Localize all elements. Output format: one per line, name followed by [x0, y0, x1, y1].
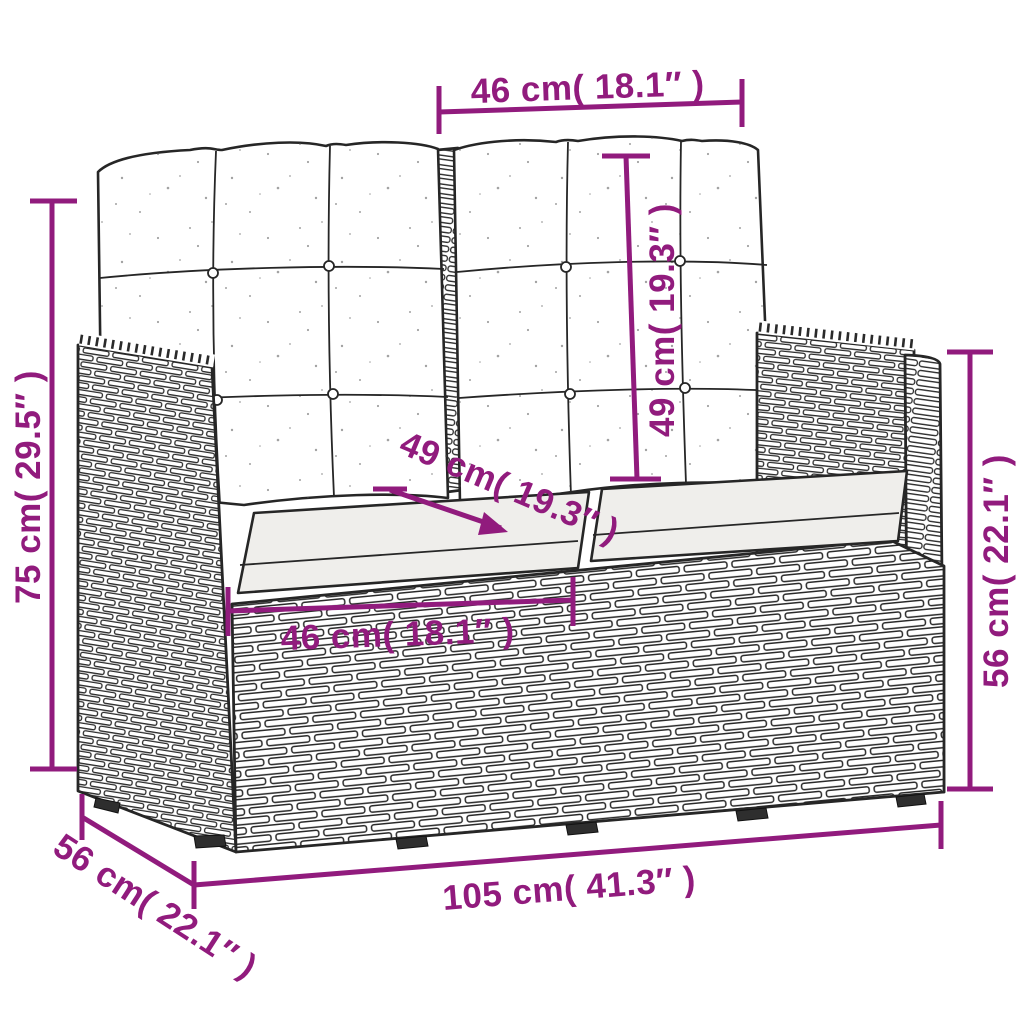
bench-dimension-diagram: 46 cm( 18.1″ ) 49 cm( 19.3″ ) 49 cm( 19.…	[0, 0, 1024, 1024]
diagram-canvas: 46 cm( 18.1″ ) 49 cm( 19.3″ ) 49 cm( 19.…	[0, 0, 1024, 1024]
dimension-back-cushion-height-label: 49 cm( 19.3″ )	[643, 203, 682, 437]
dimension-seat-width-label: 46 cm( 18.1″ )	[280, 611, 515, 658]
tuft-button	[328, 389, 338, 399]
dimension-overall-height-label: 75 cm( 29.5″ )	[9, 370, 48, 604]
dimension-side-height-label: 56 cm( 22.1″ )	[977, 454, 1016, 688]
tuft-button	[561, 262, 571, 272]
armrest-left	[78, 339, 236, 852]
tuft-button	[565, 389, 575, 399]
tuft-button	[324, 261, 334, 271]
tuft-button	[208, 268, 218, 278]
dimension-top-width-label: 46 cm( 18.1″ )	[470, 64, 705, 111]
back-cushion-right	[454, 136, 772, 504]
